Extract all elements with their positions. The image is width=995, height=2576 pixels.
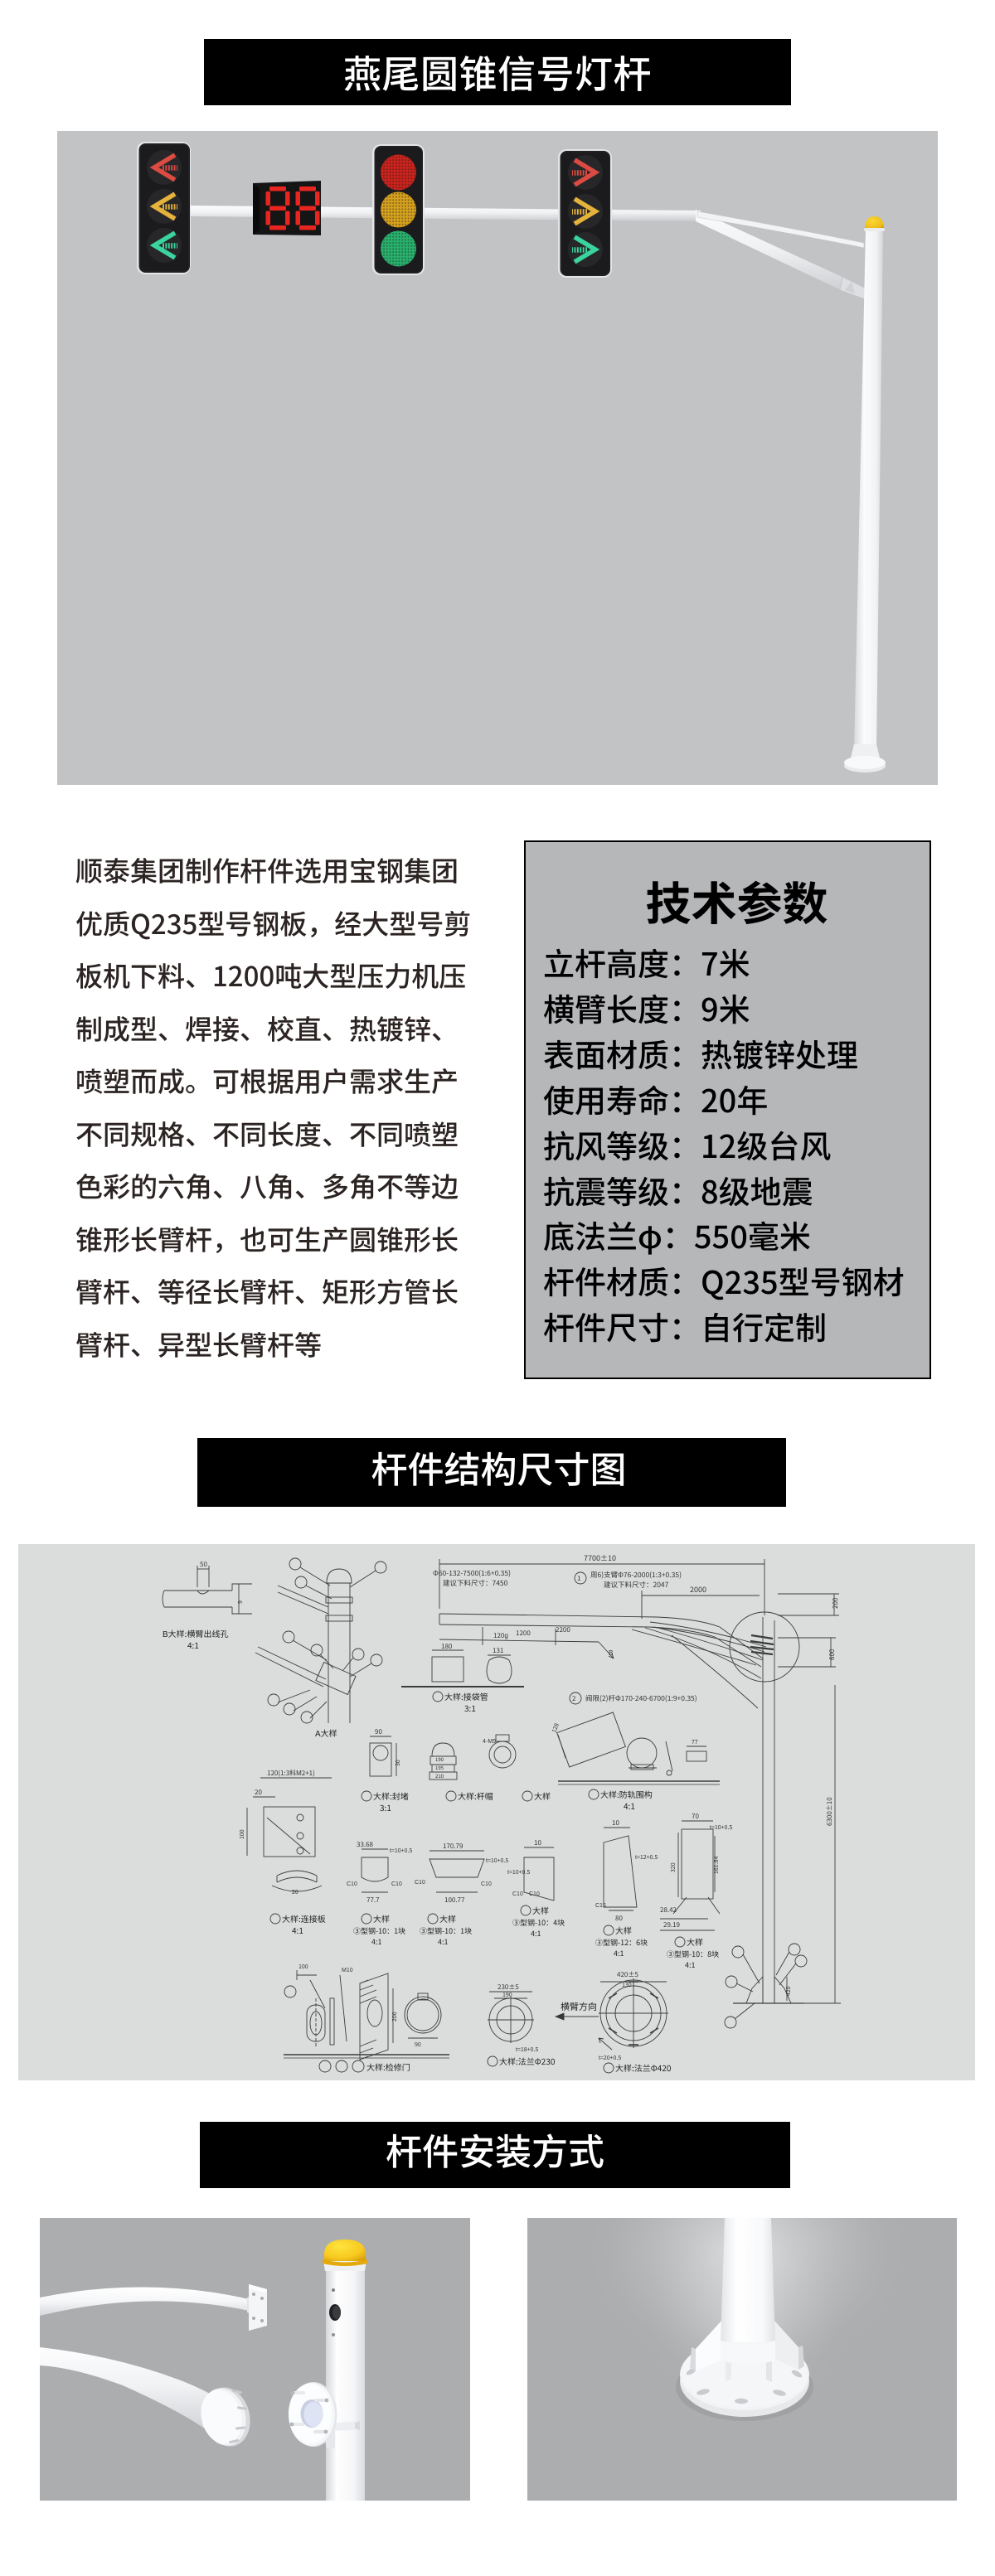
- svg-text:C10: C10: [391, 1880, 402, 1888]
- svg-text:3:1: 3:1: [464, 1702, 476, 1714]
- svg-text:建议下料尺寸：2047: 建议下料尺寸：2047: [604, 1580, 669, 1590]
- svg-text:4-M5: 4-M5: [483, 1737, 496, 1746]
- svg-text:80: 80: [615, 1914, 623, 1923]
- svg-text:190: 190: [435, 1755, 444, 1763]
- svg-text:30: 30: [394, 1760, 402, 1766]
- svg-text:20: 20: [292, 1888, 298, 1896]
- svg-text:195: 195: [435, 1764, 444, 1771]
- svg-text:7700±10: 7700±10: [584, 1552, 616, 1563]
- svg-text:20: 20: [255, 1788, 262, 1797]
- svg-text:C10: C10: [481, 1880, 492, 1888]
- svg-text:120g: 120g: [493, 1631, 508, 1640]
- svg-text:2000: 2000: [690, 1584, 706, 1595]
- svg-text:4:1: 4:1: [292, 1924, 303, 1936]
- svg-text:2200: 2200: [556, 1625, 570, 1634]
- svg-text:C10: C10: [529, 1890, 540, 1898]
- svg-text:A大样: A大样: [315, 1726, 337, 1739]
- svg-text:大样: 大样: [532, 1904, 549, 1916]
- svg-text:90: 90: [415, 2041, 421, 2049]
- svg-text:M10: M10: [342, 1966, 353, 1974]
- svg-text:大样:接袋管: 大样:接袋管: [444, 1690, 488, 1702]
- svg-text:B大样:横臂出线孔: B大样:横臂出线孔: [163, 1627, 228, 1639]
- svg-text:161.84: 161.84: [712, 1857, 721, 1874]
- svg-text:3:1: 3:1: [380, 1801, 391, 1813]
- svg-text:600: 600: [828, 1649, 837, 1660]
- svg-text:4:1: 4:1: [531, 1928, 541, 1939]
- svg-text:大样: 大样: [687, 1935, 703, 1948]
- svg-text:建议下料尺寸：7450: 建议下料尺寸：7450: [443, 1578, 508, 1588]
- svg-text:200: 200: [391, 2012, 399, 2022]
- svg-text:③型钢-10：4块: ③型钢-10：4块: [512, 1917, 565, 1928]
- svg-text:大样:连接板: 大样:连接板: [282, 1912, 326, 1925]
- svg-text:大样:封堵: 大样:封堵: [373, 1789, 409, 1802]
- svg-text:6300±10: 6300±10: [825, 1797, 834, 1826]
- svg-text:4:1: 4:1: [371, 1936, 382, 1947]
- svg-text:③型钢-10：8块: ③型钢-10：8块: [667, 1949, 719, 1959]
- svg-text:大样:杆帽: 大样:杆帽: [458, 1789, 493, 1802]
- svg-text:420±5: 420±5: [617, 1970, 638, 1979]
- svg-text:Φ60-132-7500(1:6+0.35): Φ60-132-7500(1:6+0.35): [433, 1568, 511, 1578]
- svg-text:28.42: 28.42: [660, 1905, 677, 1915]
- svg-text:t=18+0.5: t=18+0.5: [516, 2046, 538, 2054]
- svg-text:③型钢-10：1块: ③型钢-10：1块: [420, 1925, 472, 1936]
- svg-text:③型钢-10：1块: ③型钢-10：1块: [353, 1925, 405, 1936]
- svg-text:70: 70: [692, 1812, 699, 1821]
- svg-text:大样: 大样: [373, 1912, 390, 1925]
- svg-text:大样:法兰Φ420: 大样:法兰Φ420: [615, 2061, 672, 2074]
- svg-text:C10: C10: [415, 1878, 425, 1886]
- svg-text:大样: 大样: [615, 1924, 632, 1936]
- svg-text:50: 50: [200, 1560, 207, 1569]
- svg-text:131: 131: [493, 1646, 503, 1655]
- svg-text:周6)支臂Φ76-2000(1:3+0.35): 周6)支臂Φ76-2000(1:3+0.35): [590, 1570, 682, 1580]
- svg-text:10: 10: [534, 1838, 541, 1847]
- svg-text:90: 90: [375, 1727, 382, 1736]
- svg-text:横臂方向: 横臂方向: [561, 2000, 597, 2013]
- svg-text:4:1: 4:1: [614, 1948, 624, 1959]
- svg-text:C15: C15: [595, 1901, 606, 1910]
- svg-text:阀限(2)杆Φ170-240-6700(1:9+0.35): 阀限(2)杆Φ170-240-6700(1:9+0.35): [585, 1693, 697, 1703]
- svg-text:170.79: 170.79: [443, 1842, 464, 1851]
- svg-text:2: 2: [572, 1694, 576, 1703]
- svg-text:130: 130: [622, 1981, 632, 1989]
- svg-text:77.7: 77.7: [366, 1896, 380, 1905]
- svg-text:C10: C10: [512, 1890, 523, 1898]
- svg-text:420: 420: [784, 1986, 793, 1996]
- svg-text:100: 100: [298, 1963, 308, 1971]
- svg-text:180: 180: [441, 1642, 453, 1651]
- svg-text:77: 77: [692, 1738, 698, 1746]
- svg-text:大样: 大样: [439, 1912, 456, 1925]
- svg-text:4:1: 4:1: [187, 1639, 199, 1651]
- svg-text:大样:法兰Φ230: 大样:法兰Φ230: [499, 2055, 556, 2067]
- svg-text:10: 10: [612, 1818, 619, 1828]
- svg-text:29.19: 29.19: [663, 1920, 681, 1930]
- svg-text:大样:检修门: 大样:检修门: [366, 2060, 410, 2073]
- svg-text:320: 320: [669, 1862, 677, 1872]
- svg-text:t=10+0.5: t=10+0.5: [486, 1857, 508, 1865]
- svg-text:大样: 大样: [534, 1789, 551, 1802]
- svg-text:100: 100: [238, 1829, 246, 1839]
- svg-text:120(1:3科M2+1): 120(1:3科M2+1): [267, 1769, 315, 1778]
- svg-text:1200: 1200: [516, 1629, 531, 1638]
- svg-text:4:1: 4:1: [685, 1959, 696, 1970]
- svg-text:100.77: 100.77: [444, 1896, 465, 1905]
- svg-text:33.68: 33.68: [357, 1840, 374, 1849]
- svg-text:C10: C10: [347, 1880, 357, 1888]
- svg-text:t=12+0.5: t=12+0.5: [635, 1853, 658, 1862]
- svg-text:4:1: 4:1: [438, 1936, 449, 1947]
- svg-text:t=10+0.5: t=10+0.5: [390, 1847, 412, 1855]
- svg-text:B: B: [609, 1649, 613, 1658]
- svg-text:t=10+0.5: t=10+0.5: [710, 1823, 732, 1832]
- svg-text:9: 9: [236, 1600, 245, 1604]
- svg-text:210: 210: [435, 1772, 444, 1779]
- svg-text:1: 1: [577, 1574, 580, 1583]
- svg-text:4:1: 4:1: [624, 1799, 635, 1812]
- svg-text:200: 200: [831, 1597, 840, 1609]
- svg-text:大样:防轨围构: 大样:防轨围构: [600, 1788, 653, 1800]
- svg-text:③型钢-12：6块: ③型钢-12：6块: [595, 1937, 648, 1948]
- svg-text:t=10+0.5: t=10+0.5: [507, 1868, 530, 1876]
